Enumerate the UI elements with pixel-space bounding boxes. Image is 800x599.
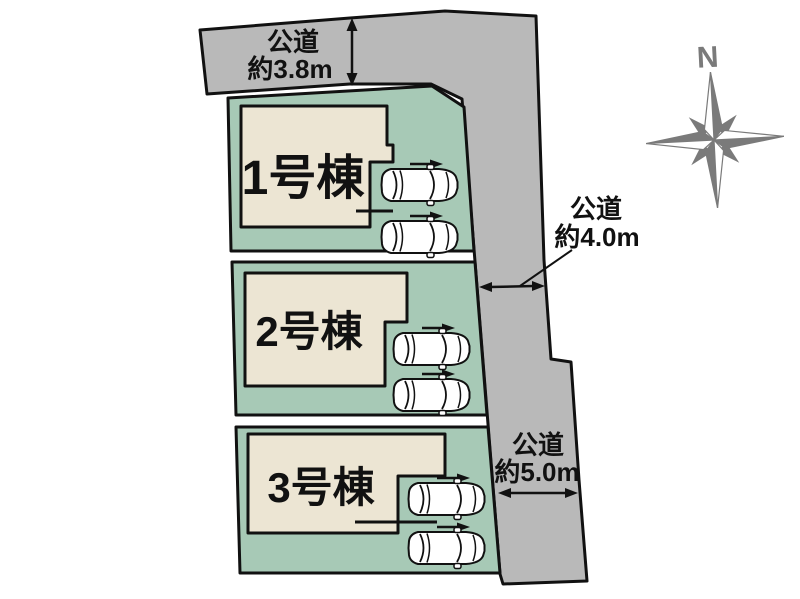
compass-rose: N	[641, 37, 788, 211]
road-right-lower-width: 約5.0m	[494, 457, 579, 487]
road-right-upper-name: 公道	[570, 194, 622, 224]
road-top-name: 公道	[267, 27, 319, 57]
site-plan-page: 1号棟 2号棟 3号棟 公道 約3.8m 公道 約4.0m 公道 約5.0m	[0, 0, 800, 599]
lot-1-label: 1号棟	[242, 152, 366, 205]
road-top-width: 約3.8m	[247, 54, 332, 84]
compass-north-label: N	[696, 41, 719, 75]
compass-star-icon	[643, 68, 788, 211]
road-right-upper-width: 約4.0m	[554, 222, 639, 252]
lot-3-label: 3号棟	[267, 464, 375, 511]
road-right-lower-name: 公道	[512, 430, 564, 460]
site-plan-canvas: 1号棟 2号棟 3号棟 公道 約3.8m 公道 約4.0m 公道 約5.0m	[0, 0, 800, 599]
lot-2-label: 2号棟	[255, 308, 363, 355]
